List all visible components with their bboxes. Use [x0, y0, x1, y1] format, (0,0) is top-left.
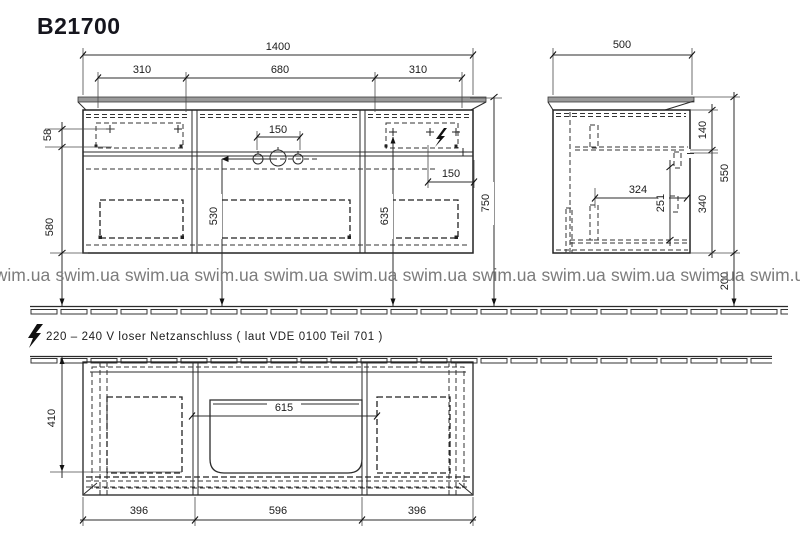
- dim-tap-spacing: 150: [269, 124, 287, 136]
- page-title: B21700: [37, 13, 121, 40]
- dim-plan-right: 396: [408, 505, 426, 517]
- cabinet-side-outline: [553, 110, 690, 253]
- plan-view: [83, 362, 473, 495]
- dim-inner-depth: 324: [629, 184, 647, 196]
- dim-right-section: 310: [409, 64, 427, 76]
- left-lower-drawer-dashed: [100, 200, 183, 238]
- dim-floor-clearance: 200: [719, 272, 731, 290]
- center-lower-drawer-dashed: [213, 200, 350, 238]
- right-upper-drawer-dashed: [386, 123, 458, 148]
- plan-left-drawer-dashed: [107, 397, 182, 473]
- floor-section-band: [30, 307, 788, 316]
- technical-drawing-sheet: 1400 310 680 310 150 150 58 580 530 635 …: [0, 0, 800, 554]
- dim-center-section: 680: [271, 64, 289, 76]
- plan-outline: [83, 362, 473, 495]
- dim-plan-depth: 410: [46, 409, 58, 427]
- worktop-front: [78, 97, 486, 102]
- plan-right-drawer-dashed: [377, 397, 450, 473]
- dim-inner-clearance: 251: [655, 194, 667, 212]
- dim-plan-center: 596: [269, 505, 287, 517]
- dim-depth: 500: [613, 39, 631, 51]
- dim-socket-offset: 150: [442, 168, 460, 180]
- lightning-icon: [28, 324, 43, 348]
- dim-left-section: 310: [133, 64, 151, 76]
- dim-total-width: 1400: [266, 41, 290, 53]
- dim-top-offset: 58: [42, 129, 54, 141]
- left-upper-drawer-dashed: [96, 123, 183, 148]
- dim-socket-height: 635: [379, 207, 391, 225]
- dim-drain-height: 530: [208, 207, 220, 225]
- dim-plan-left: 396: [130, 505, 148, 517]
- dim-lower-zone-height: 340: [697, 195, 709, 213]
- side-view: [548, 97, 695, 253]
- electrical-note: 220 – 240 V loser Netzanschluss ( laut V…: [28, 324, 383, 348]
- dim-lower-height: 580: [44, 218, 56, 236]
- dim-worktop-height: 750: [480, 194, 492, 212]
- wall-section-band: [30, 357, 772, 366]
- worktop-side: [548, 97, 694, 102]
- dim-basin-cutout: 615: [275, 402, 293, 414]
- drawing-canvas: 1400 310 680 310 150 150 58 580 530 635 …: [0, 0, 800, 554]
- right-lower-drawer-dashed: [390, 200, 458, 238]
- dimension-lines: [45, 48, 740, 526]
- electrical-note-text: 220 – 240 V loser Netzanschluss ( laut V…: [46, 331, 383, 343]
- dim-top-drawer-height: 140: [697, 121, 709, 139]
- front-view: [78, 97, 486, 253]
- dim-cabinet-height: 550: [719, 164, 731, 182]
- lightning-icon: [435, 128, 447, 147]
